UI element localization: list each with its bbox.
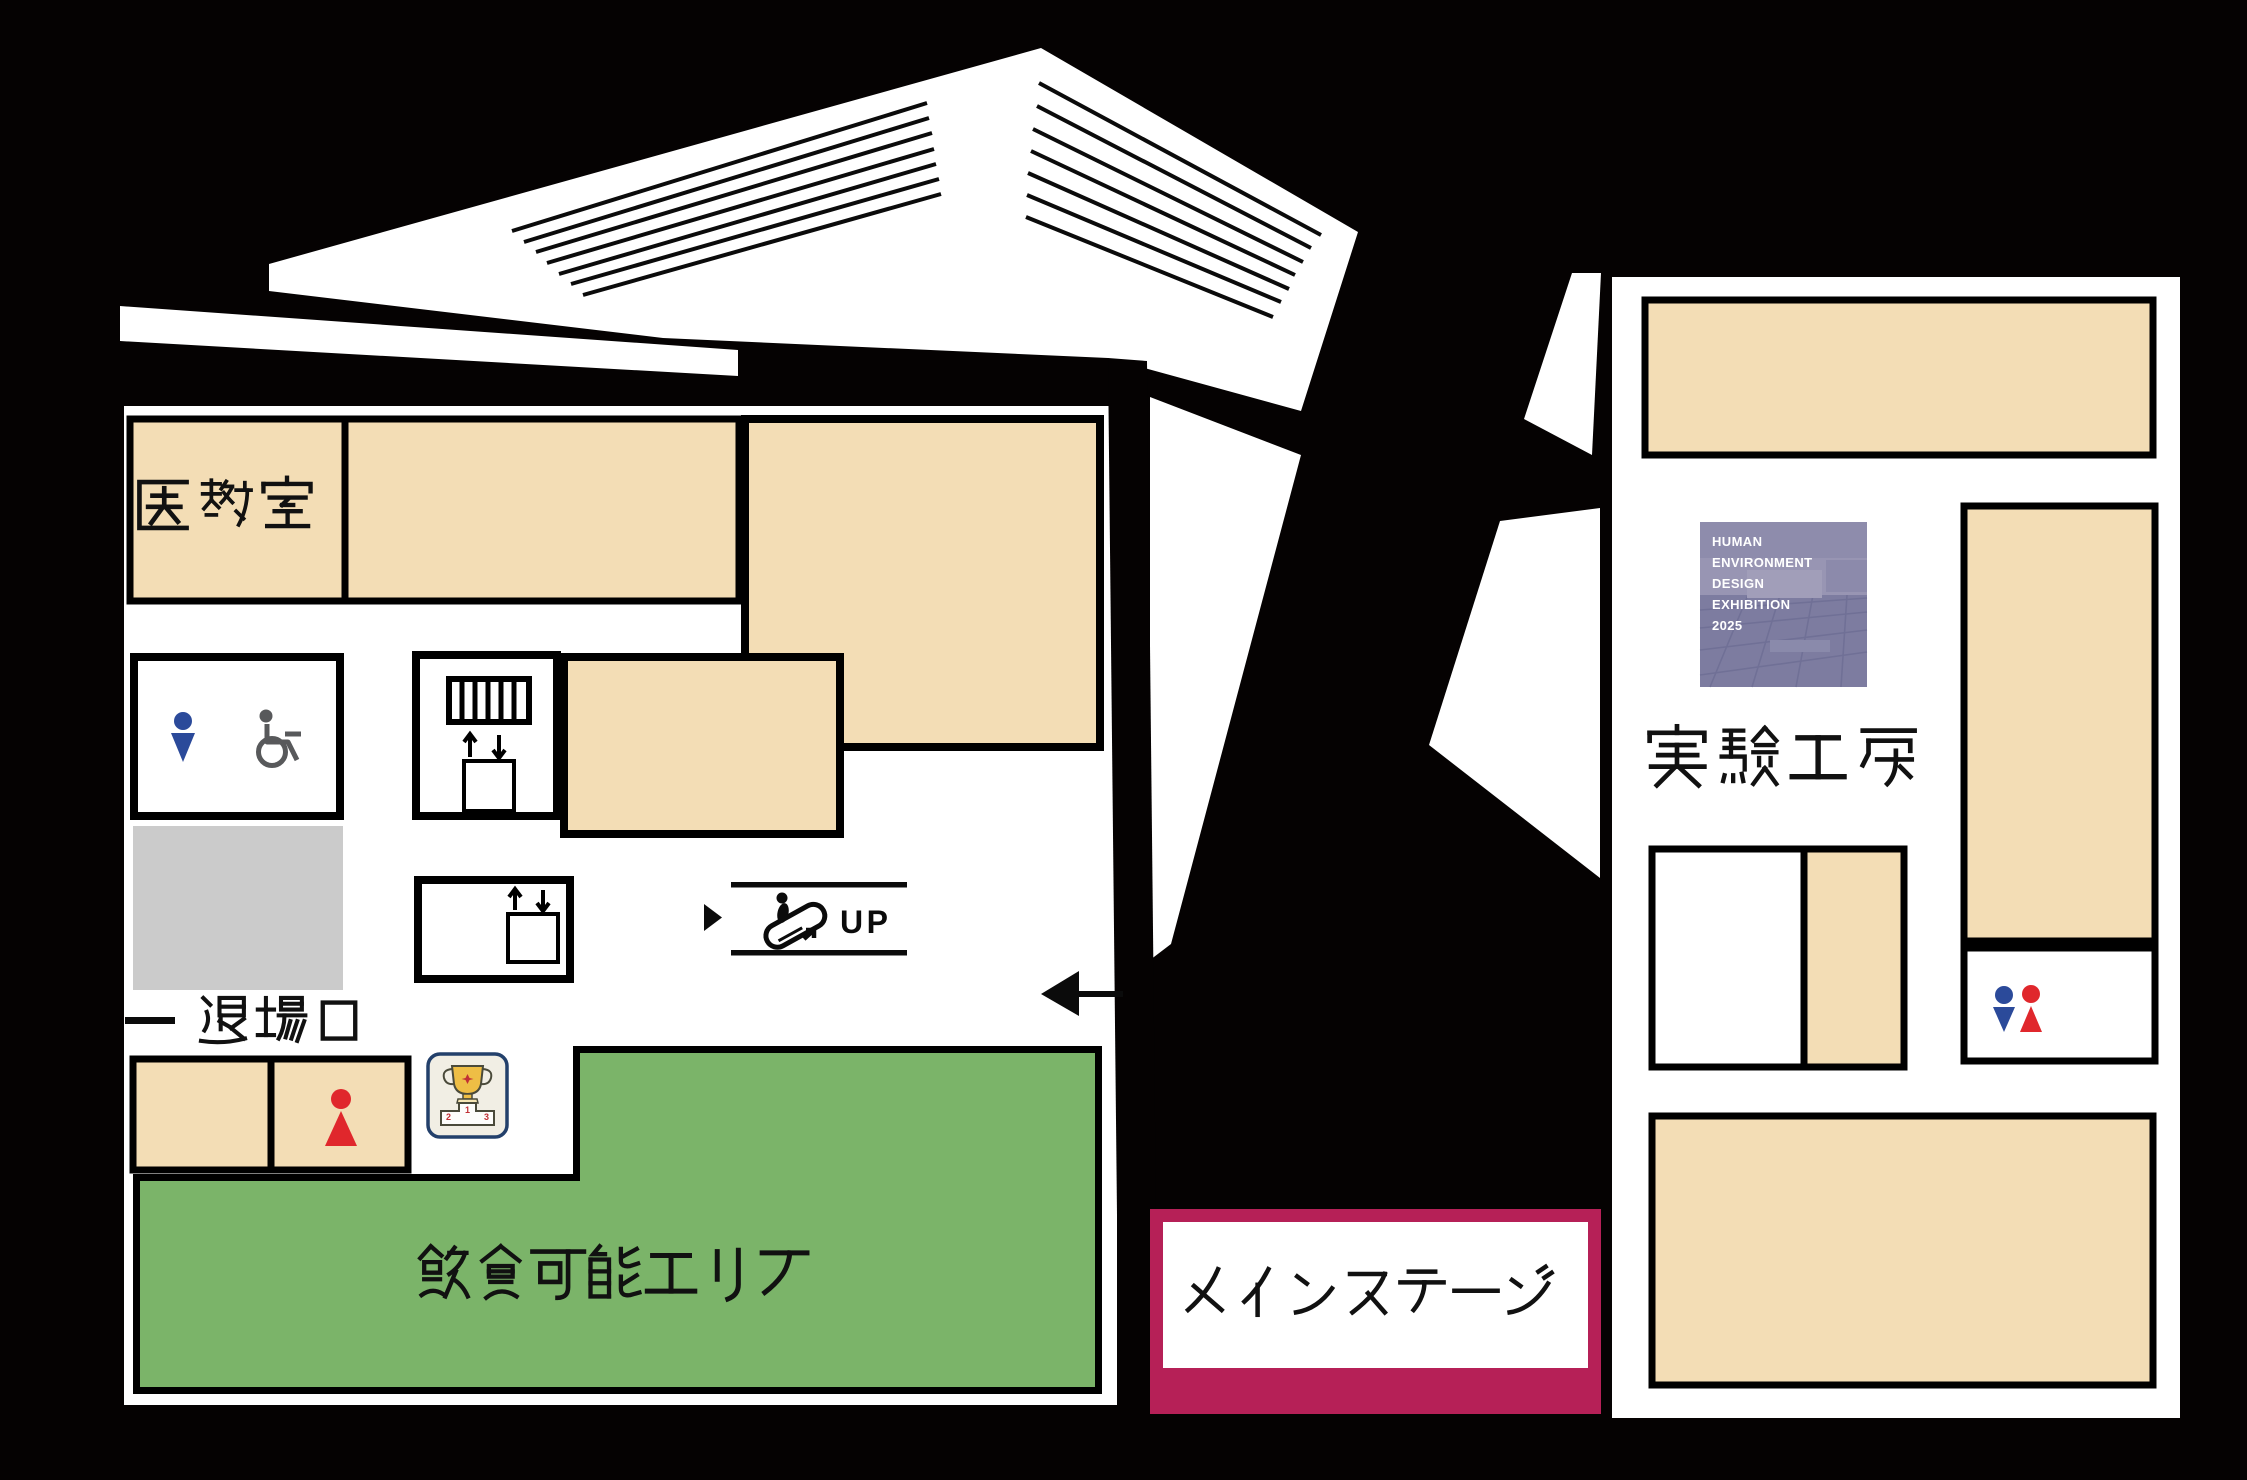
svg-text:HUMAN: HUMAN	[1712, 534, 1762, 549]
svg-text:3: 3	[484, 1112, 489, 1122]
svg-text:2025: 2025	[1712, 618, 1743, 633]
svg-text:1: 1	[465, 1105, 470, 1115]
svg-text:DESIGN: DESIGN	[1712, 576, 1764, 591]
svg-text:EXHIBITION: EXHIBITION	[1712, 597, 1790, 612]
svg-text:UP: UP	[840, 904, 891, 940]
svg-text:ENVIRONMENT: ENVIRONMENT	[1712, 555, 1812, 570]
svg-text:2: 2	[446, 1112, 451, 1122]
